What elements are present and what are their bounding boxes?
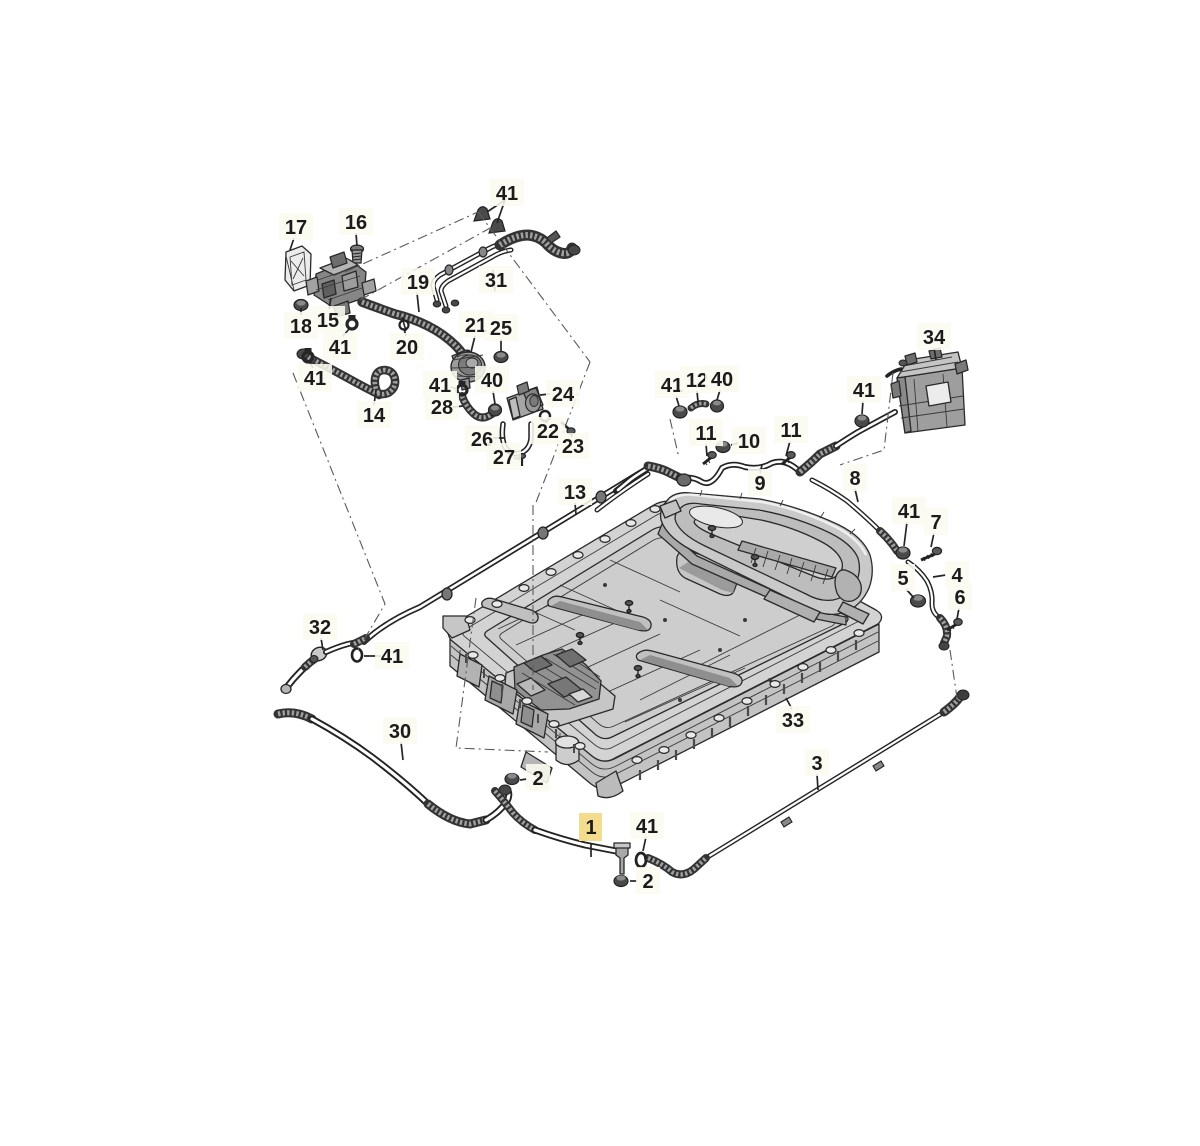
svg-text:41: 41 — [304, 368, 326, 390]
svg-text:19: 19 — [407, 272, 429, 294]
svg-text:11: 11 — [695, 423, 716, 445]
svg-text:33: 33 — [782, 710, 804, 732]
svg-text:10: 10 — [738, 431, 760, 453]
svg-text:15: 15 — [317, 310, 339, 332]
svg-text:22: 22 — [537, 421, 559, 443]
svg-text:41: 41 — [636, 816, 658, 838]
svg-text:40: 40 — [481, 370, 503, 392]
svg-text:25: 25 — [490, 318, 512, 340]
svg-text:30: 30 — [389, 721, 411, 743]
svg-text:9: 9 — [754, 473, 765, 495]
svg-text:41: 41 — [853, 380, 875, 402]
svg-text:8: 8 — [849, 468, 860, 490]
svg-text:28: 28 — [431, 397, 453, 419]
svg-text:24: 24 — [552, 384, 575, 406]
svg-text:1: 1 — [585, 817, 596, 839]
svg-text:16: 16 — [345, 212, 367, 234]
svg-text:23: 23 — [562, 436, 584, 458]
svg-text:41: 41 — [898, 501, 920, 523]
svg-text:6: 6 — [954, 587, 965, 609]
svg-text:13: 13 — [564, 482, 586, 504]
svg-text:31: 31 — [485, 270, 507, 292]
svg-text:3: 3 — [811, 753, 822, 775]
svg-text:41: 41 — [496, 183, 518, 205]
svg-text:41: 41 — [329, 337, 351, 359]
svg-text:27: 27 — [493, 447, 515, 469]
svg-text:17: 17 — [285, 217, 307, 239]
svg-text:11: 11 — [780, 420, 801, 442]
svg-text:2: 2 — [642, 871, 653, 893]
svg-text:34: 34 — [923, 327, 946, 349]
svg-text:2: 2 — [532, 768, 543, 790]
svg-text:18: 18 — [290, 316, 312, 338]
svg-text:7: 7 — [930, 512, 941, 534]
svg-text:20: 20 — [396, 337, 418, 359]
svg-text:40: 40 — [711, 369, 733, 391]
svg-text:41: 41 — [661, 375, 683, 397]
svg-text:5: 5 — [897, 568, 908, 590]
svg-text:32: 32 — [309, 617, 331, 639]
svg-text:41: 41 — [381, 646, 403, 668]
svg-text:12: 12 — [686, 370, 708, 392]
svg-text:21: 21 — [465, 315, 487, 337]
svg-text:14: 14 — [363, 405, 386, 427]
